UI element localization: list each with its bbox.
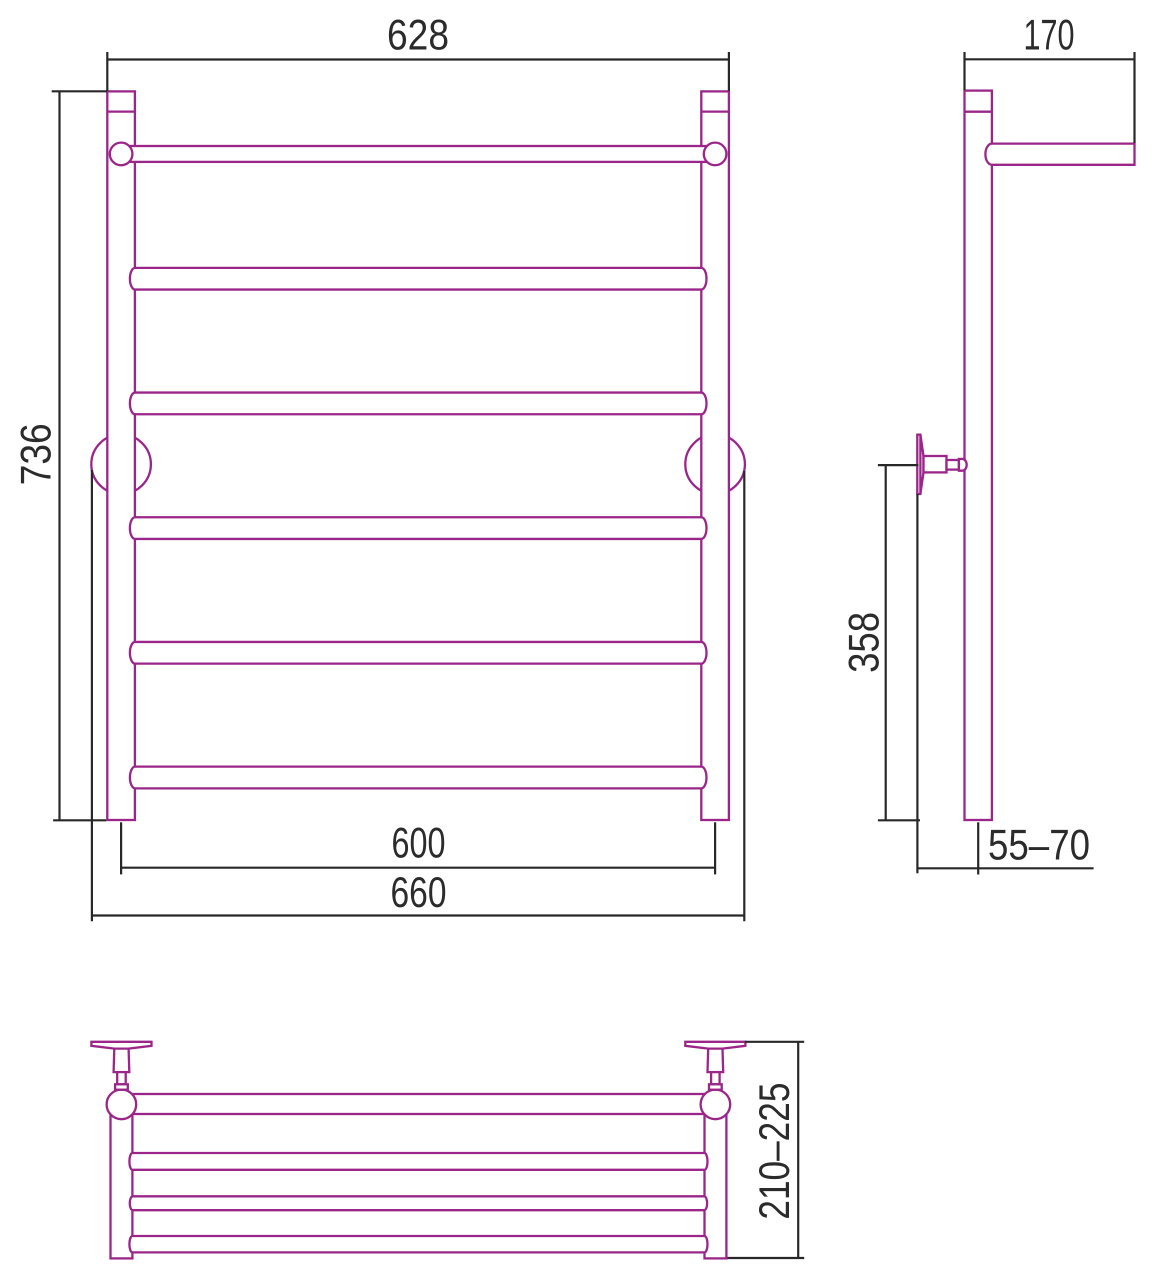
svg-text:55–70: 55–70 bbox=[988, 822, 1090, 870]
svg-text:660: 660 bbox=[391, 869, 447, 917]
svg-text:358: 358 bbox=[840, 612, 888, 673]
svg-text:628: 628 bbox=[387, 12, 449, 60]
svg-text:170: 170 bbox=[1024, 11, 1075, 59]
svg-text:600: 600 bbox=[392, 820, 446, 868]
svg-text:210–225: 210–225 bbox=[751, 1083, 799, 1220]
svg-text:736: 736 bbox=[13, 423, 61, 485]
